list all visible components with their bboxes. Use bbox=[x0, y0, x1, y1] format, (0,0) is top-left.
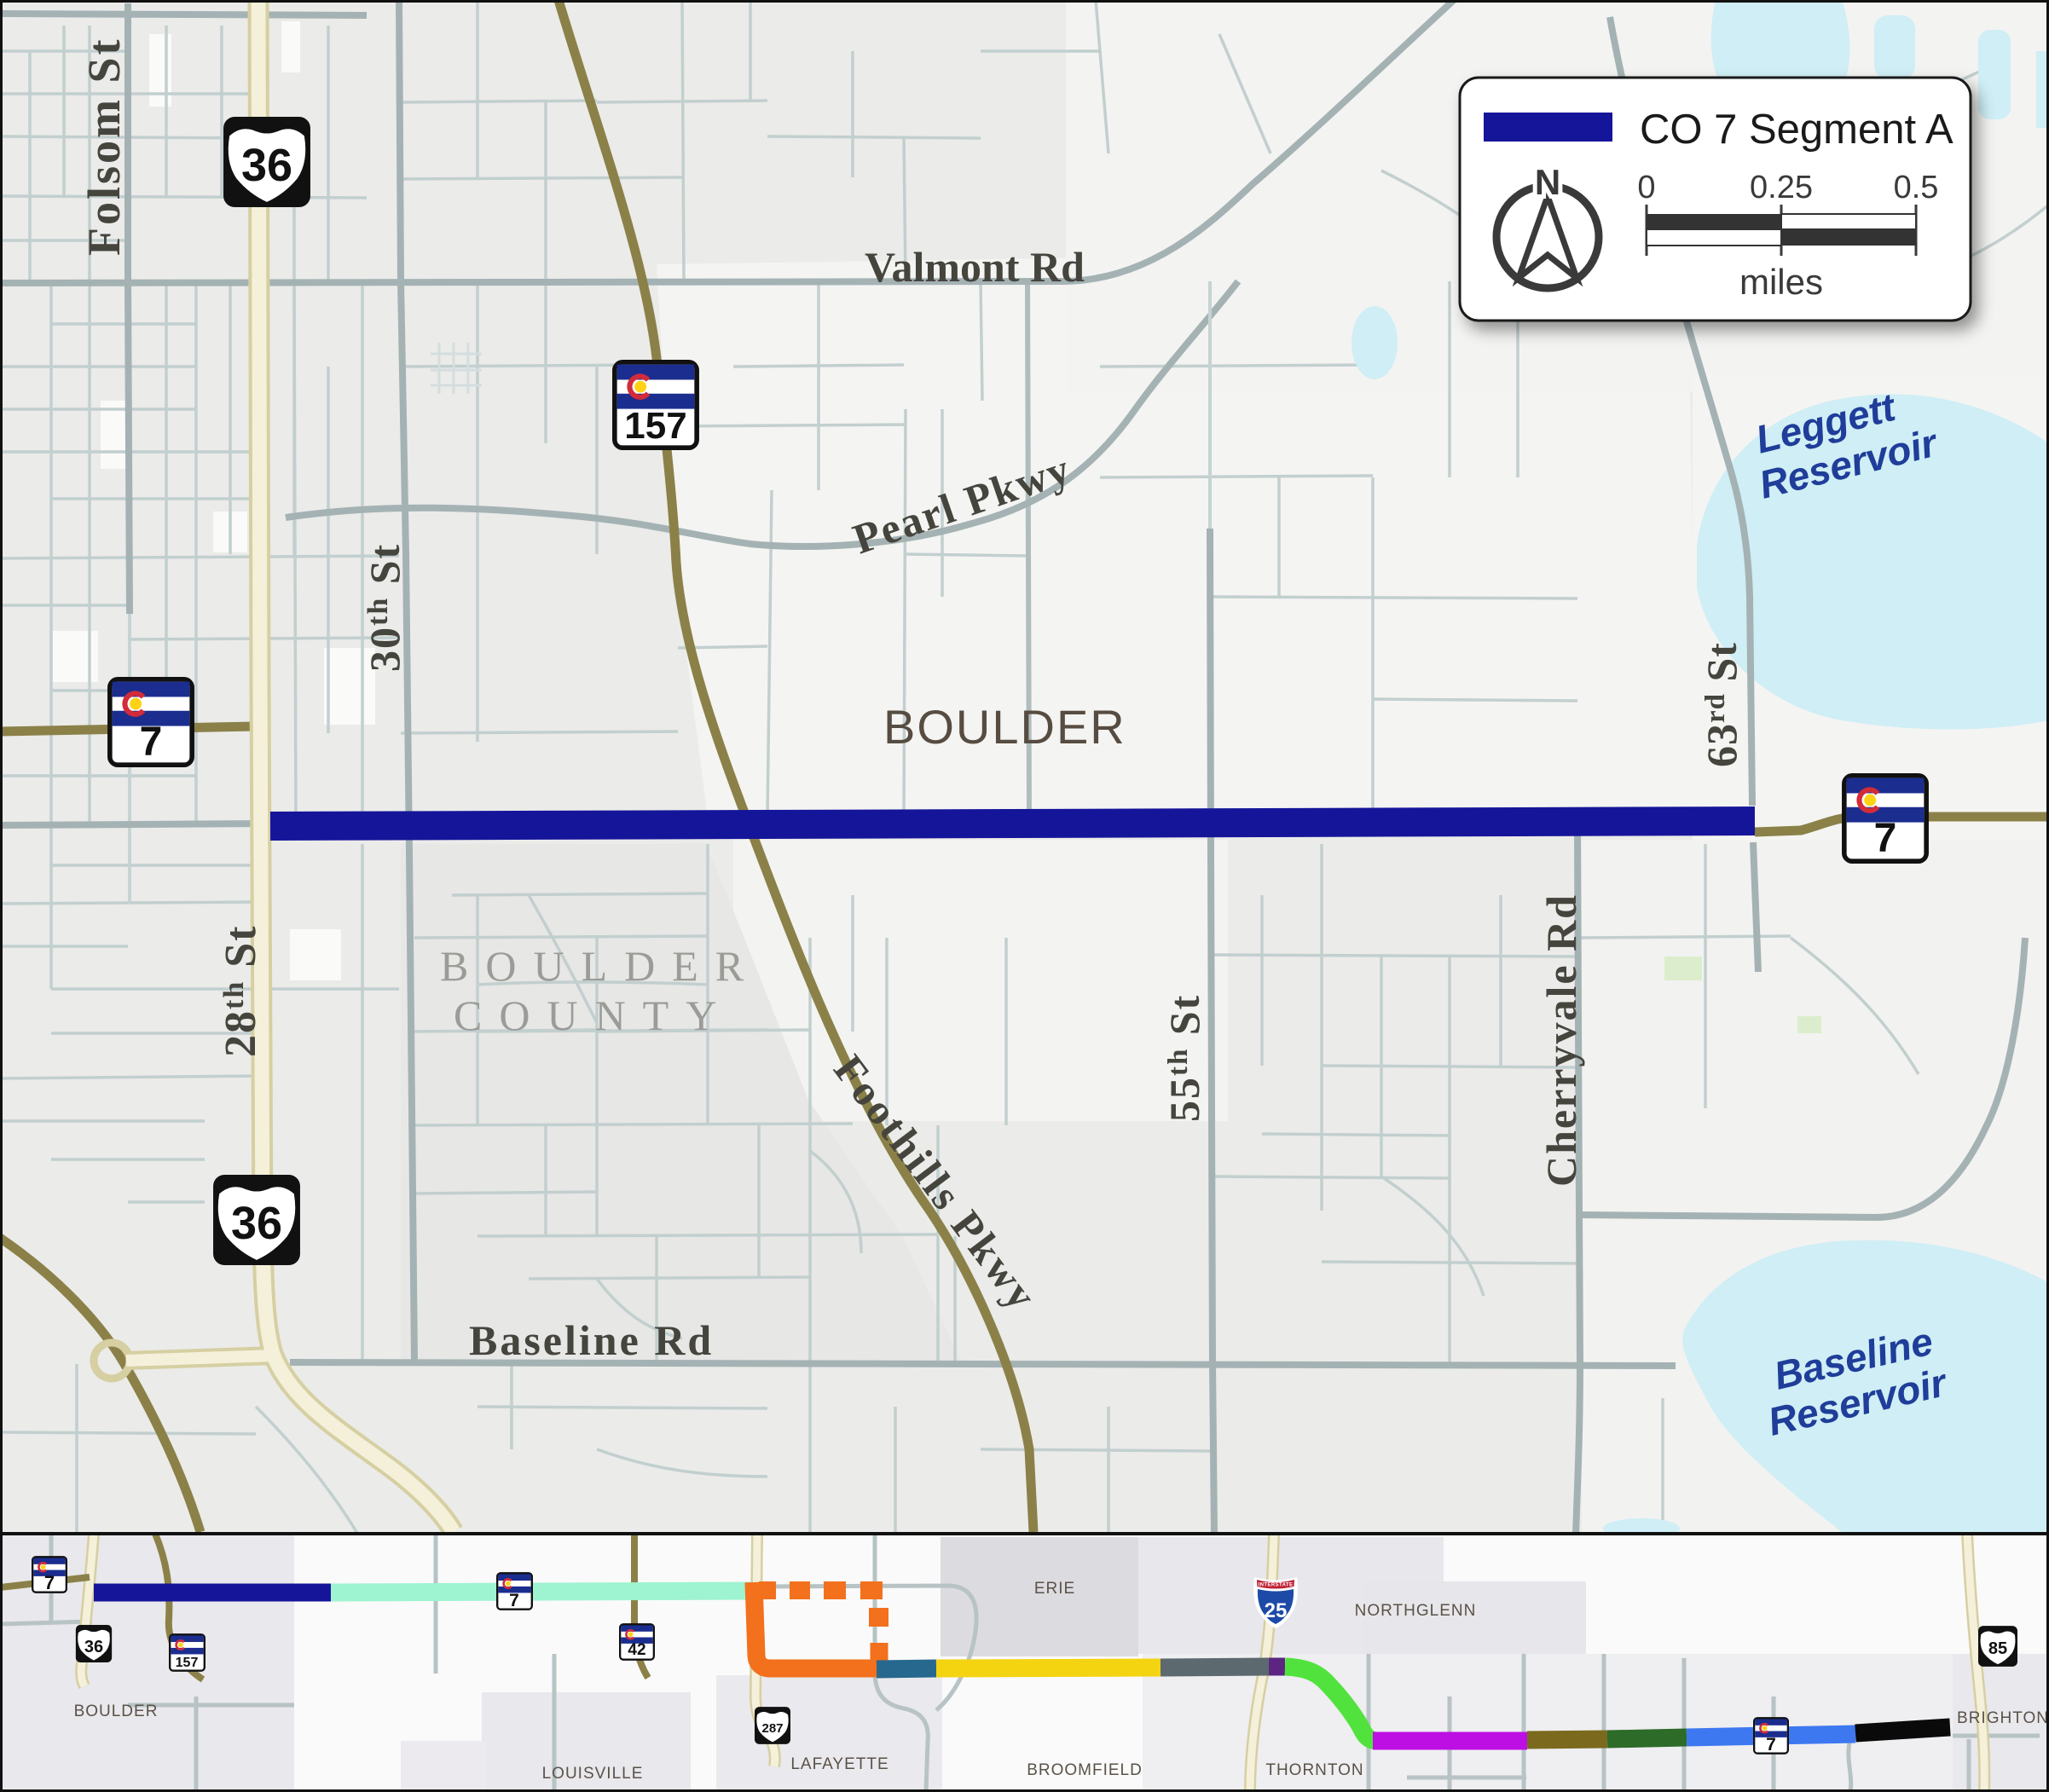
svg-text:42: 42 bbox=[628, 1641, 645, 1659]
svg-text:287: 287 bbox=[761, 1721, 783, 1736]
svg-text:7: 7 bbox=[140, 720, 163, 765]
svg-text:7: 7 bbox=[44, 1572, 55, 1593]
svg-text:ERIE: ERIE bbox=[1034, 1580, 1075, 1598]
svg-text:7: 7 bbox=[1874, 816, 1897, 861]
svg-text:157: 157 bbox=[624, 405, 686, 447]
svg-text:0.25: 0.25 bbox=[1750, 170, 1813, 205]
svg-text:LOUISVILLE: LOUISVILLE bbox=[542, 1765, 644, 1783]
svg-text:BOULDER: BOULDER bbox=[440, 942, 761, 990]
svg-text:BOULDER: BOULDER bbox=[883, 700, 1126, 754]
svg-text:0.5: 0.5 bbox=[1894, 170, 1939, 205]
svg-text:7: 7 bbox=[1766, 1735, 1776, 1754]
svg-text:36: 36 bbox=[231, 1198, 282, 1249]
svg-text:36: 36 bbox=[84, 1638, 103, 1656]
svg-text:CO 7 Segment A: CO 7 Segment A bbox=[1640, 107, 1953, 153]
svg-text:36: 36 bbox=[241, 140, 292, 191]
svg-text:0: 0 bbox=[1637, 170, 1655, 205]
svg-text:7: 7 bbox=[509, 1591, 519, 1610]
svg-text:LAFAYETTE: LAFAYETTE bbox=[790, 1755, 888, 1773]
svg-text:25: 25 bbox=[1265, 1599, 1288, 1622]
svg-text:Folsom St: Folsom St bbox=[78, 38, 130, 257]
svg-text:Cherryvale Rd: Cherryvale Rd bbox=[1537, 893, 1585, 1187]
svg-text:COUNTY: COUNTY bbox=[454, 991, 733, 1039]
svg-text:157: 157 bbox=[176, 1656, 199, 1670]
svg-text:miles: miles bbox=[1739, 262, 1823, 302]
svg-text:85: 85 bbox=[1988, 1639, 2007, 1658]
svg-text:N: N bbox=[1535, 162, 1560, 202]
svg-text:INTERSTATE: INTERSTATE bbox=[1259, 1583, 1294, 1588]
svg-text:THORNTON: THORNTON bbox=[1265, 1761, 1363, 1779]
svg-text:Baseline Rd: Baseline Rd bbox=[469, 1316, 714, 1364]
svg-text:BRIGHTON: BRIGHTON bbox=[1957, 1709, 2049, 1727]
svg-text:BOULDER: BOULDER bbox=[74, 1702, 159, 1720]
svg-text:Valmont Rd: Valmont Rd bbox=[865, 243, 1085, 291]
svg-text:NORTHGLENN: NORTHGLENN bbox=[1355, 1602, 1477, 1620]
svg-text:BROOMFIELD: BROOMFIELD bbox=[1027, 1761, 1143, 1779]
